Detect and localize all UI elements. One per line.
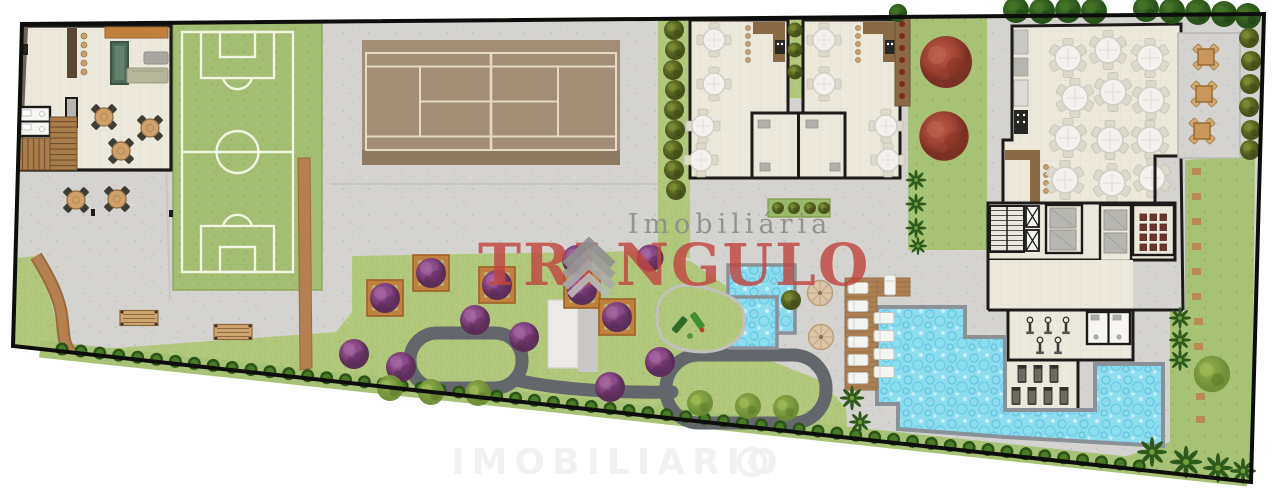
stairs [50,117,77,170]
elevator [1026,206,1039,227]
trash-bin-icon [91,209,95,216]
sofa [144,52,168,64]
sauna-box [1104,210,1127,230]
garden-walkway [578,300,598,372]
watermark-bottom-text: IMOBILIARIO [451,442,785,483]
garden-structure [548,300,578,368]
storage-box [1050,208,1076,228]
party-a-sink [775,40,785,54]
elevator [1026,230,1039,251]
bush-column-left [663,20,686,200]
trash-bin-icon [169,210,173,217]
site-plan-svg: Imobiliária TRI NGULO IMOBILIARIO [0,0,1280,501]
play-equipment [687,333,693,339]
party-a-counter [753,22,785,34]
lounge-bar [67,28,77,78]
lounge-counter [105,27,168,38]
beach-umbrella [809,325,834,350]
sauna-box [1104,233,1127,253]
tennis-court [362,40,620,165]
storage-box [1050,230,1076,250]
dirt-path [298,158,312,370]
kitchen-bar-leg [1030,160,1040,202]
lobby-corridor [988,260,1133,310]
party-b-sink [885,40,895,54]
garden-bench [120,311,158,326]
garden-bench [214,325,252,340]
lawn-tree [1194,356,1230,392]
tree [889,4,907,22]
red-tree [919,111,968,160]
red-tree [920,36,972,88]
games-lounge [18,26,171,172]
stove-icon [1014,110,1028,134]
site-plan-image: Imobiliária TRI NGULO IMOBILIARIO [0,0,1280,501]
watermark-bottom: IMOBILIARIO [451,442,785,483]
party-b-counter [863,22,895,34]
billiards-felt [115,46,125,80]
watermark-brand-suffix: NGULO [616,231,870,299]
bush-column-middle [788,23,803,80]
kitchen-bar [1005,150,1040,160]
stairs-lower [18,138,50,170]
play-equipment [700,328,705,333]
bench-sofa [127,68,168,83]
